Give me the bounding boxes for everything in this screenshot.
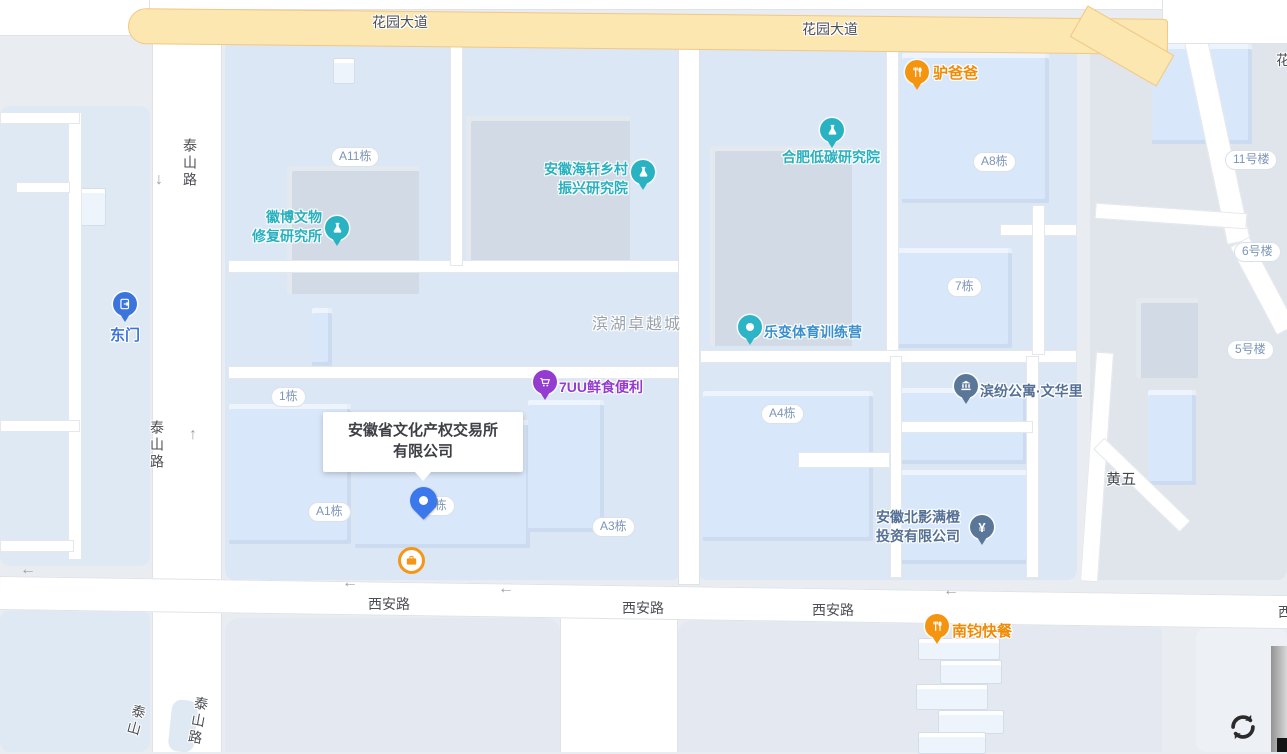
- poi-pin-nanjun[interactable]: [925, 614, 949, 638]
- poi-label-lebian[interactable]: 乐变体育训练营: [764, 323, 862, 342]
- road-inner: [0, 420, 80, 432]
- building: [1148, 390, 1196, 485]
- place-name-line2: 有限公司: [323, 441, 523, 462]
- dot-icon: [746, 323, 754, 331]
- panel-edge-bar: [1271, 646, 1287, 752]
- flask-icon: [330, 221, 345, 236]
- map-canvas[interactable]: 花园大道 花园大道 花 西安路 西安路 西安路 西 泰山路 泰山路 泰山 泰山路…: [0, 0, 1287, 752]
- road-inner: [0, 112, 80, 124]
- poi-label-line: 修复研究所: [240, 227, 322, 246]
- poi-label-ditan[interactable]: 合肥低碳研究院: [782, 148, 880, 167]
- gate-icon: [118, 297, 132, 311]
- flask-icon: [825, 123, 840, 138]
- flask-icon: [636, 165, 651, 180]
- poi-label-line: 徽博文物: [240, 208, 322, 227]
- road-label-huayuan-2: 花园大道: [802, 19, 858, 39]
- panel-edge-dark: [1277, 738, 1287, 752]
- road-label-taishan-upper: 泰山路: [180, 138, 200, 189]
- road-label-huayuan-partial: 花: [1276, 50, 1287, 70]
- poi-pin-qiuu[interactable]: [533, 370, 557, 394]
- poi-pin-company[interactable]: [398, 547, 425, 574]
- road-inner: [1032, 205, 1045, 355]
- poi-pin-huibo[interactable]: [325, 216, 349, 240]
- road-inner: [68, 112, 82, 560]
- building-label-6hao: 6号楼: [1234, 242, 1281, 262]
- poi-label-lvbaba[interactable]: 驴爸爸: [933, 64, 978, 83]
- poi-pin-haixuan[interactable]: [631, 160, 655, 184]
- block-bottom-mid: [225, 618, 560, 752]
- building: [918, 638, 1000, 660]
- place-name-line1: 安徽省文化产权交易所: [323, 420, 523, 441]
- road-label-xian-1: 西安路: [368, 594, 410, 614]
- poi-label-line: 安徽北影满橙: [852, 508, 960, 527]
- poi-label-line: 振兴研究院: [520, 179, 628, 198]
- road-top-left: [0, 0, 150, 36]
- poi-label-line: 安徽海轩乡村: [520, 160, 628, 179]
- poi-label-binfen[interactable]: 滨纷公寓·文华里: [980, 382, 1083, 401]
- poi-label-beiying[interactable]: 安徽北影满橙 投资有限公司: [852, 508, 960, 546]
- poi-pin-lebian[interactable]: [738, 315, 762, 339]
- restaurant-icon: [930, 619, 945, 634]
- building-label-11hao: 11号楼: [1225, 150, 1277, 170]
- road-inner: [16, 182, 70, 193]
- building: [333, 58, 355, 84]
- road-inner: [450, 42, 463, 266]
- traffic-arrow-down-icon: ↓: [155, 172, 163, 188]
- road-label-taishan-mid: 泰山路: [147, 420, 167, 471]
- building-label-1: 1栋: [271, 387, 306, 407]
- bank-building-icon: [959, 379, 973, 393]
- building: [896, 248, 1012, 348]
- briefcase-icon: [404, 553, 419, 568]
- building-label-7: 7栋: [947, 277, 982, 297]
- building: [916, 684, 988, 710]
- poi-label-line: 投资有限公司: [852, 527, 960, 546]
- traffic-arrow-left-icon: ←: [943, 583, 959, 599]
- road-inner: [0, 540, 74, 552]
- traffic-arrow-left-icon: ←: [20, 562, 36, 578]
- pin-dot: [417, 494, 430, 507]
- traffic-arrow-left-icon: ←: [498, 581, 514, 597]
- infobox-pointer: [415, 472, 431, 481]
- poi-pin-lvbaba[interactable]: [905, 60, 929, 84]
- yen-icon: ¥: [978, 521, 985, 534]
- place-infobox[interactable]: 安徽省文化产权交易所 有限公司: [323, 412, 523, 472]
- restaurant-icon: [910, 65, 925, 80]
- building-label-a4: A4栋: [761, 404, 804, 424]
- road-label-xian-2: 西安路: [622, 598, 664, 618]
- road-top-right: [1162, 0, 1287, 44]
- shopping-cart-icon: [538, 375, 552, 389]
- building-label-a11: A11栋: [331, 147, 379, 167]
- poi-label-dongmen[interactable]: 东门: [110, 326, 140, 345]
- traffic-arrow-left-icon: ←: [342, 575, 358, 591]
- poi-pin-ditan[interactable]: [820, 118, 844, 142]
- building-label-5hao: 5号楼: [1227, 340, 1274, 360]
- building: [312, 308, 332, 366]
- road-inner: [700, 350, 1077, 363]
- refresh-icon[interactable]: [1226, 710, 1260, 749]
- road-inner: [898, 421, 1033, 433]
- poi-pin-binfen[interactable]: [954, 374, 978, 398]
- building: [710, 146, 852, 346]
- road-inner: [886, 46, 899, 358]
- building-label-a3: A3栋: [592, 517, 635, 537]
- poi-pin-beiying[interactable]: ¥: [970, 515, 994, 539]
- road-label-huangwu: 黄五: [1106, 468, 1136, 489]
- road-label-xian-3: 西安路: [812, 600, 854, 620]
- poi-label-haixuan[interactable]: 安徽海轩乡村 振兴研究院: [520, 160, 628, 198]
- poi-label-qiuu[interactable]: 7UU鲜食便利: [559, 378, 643, 397]
- poi-pin-dongmen[interactable]: [113, 292, 137, 316]
- building: [1136, 298, 1198, 378]
- road-label-huayuan-1: 花园大道: [372, 12, 428, 32]
- traffic-arrow-up-icon: ↑: [189, 427, 197, 443]
- building-label-a8: A8栋: [973, 152, 1016, 172]
- poi-label-huibo[interactable]: 徽博文物 修复研究所: [240, 208, 322, 246]
- road-inner: [798, 452, 890, 468]
- area-label-binhu: 滨湖卓越城: [592, 310, 682, 334]
- building: [528, 400, 604, 532]
- building: [940, 660, 1002, 684]
- building: [938, 710, 1004, 734]
- building: [918, 732, 986, 754]
- road-label-xian-partial: 西: [1278, 602, 1287, 622]
- road-bottom-gap: [560, 612, 678, 752]
- building-label-a1: A1栋: [308, 502, 351, 522]
- poi-label-nanjun[interactable]: 南钧快餐: [952, 622, 1012, 641]
